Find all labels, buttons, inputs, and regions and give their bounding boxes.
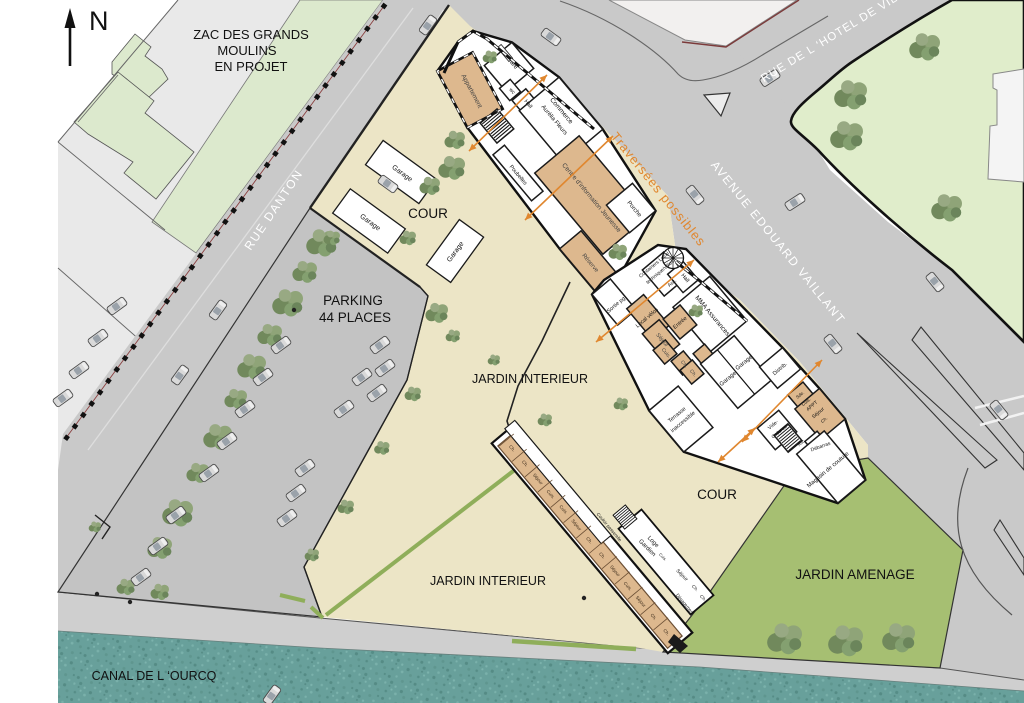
svg-text:JARDIN INTERIEUR: JARDIN INTERIEUR [430, 574, 546, 588]
svg-text:JARDIN INTERIEUR: JARDIN INTERIEUR [472, 372, 588, 386]
svg-text:COUR: COUR [408, 206, 448, 221]
svg-text:44 PLACES: 44 PLACES [319, 310, 391, 325]
svg-text:JARDIN AMENAGE: JARDIN AMENAGE [795, 567, 914, 582]
svg-text:ZAC DES GRANDS: ZAC DES GRANDS [193, 27, 309, 42]
svg-text:PARKING: PARKING [323, 293, 383, 308]
svg-text:MOULINS: MOULINS [217, 43, 277, 58]
svg-text:N: N [89, 6, 109, 36]
svg-text:CANAL DE L ‘OURCQ: CANAL DE L ‘OURCQ [92, 669, 217, 683]
svg-text:COUR: COUR [697, 487, 737, 502]
svg-text:EN PROJET: EN PROJET [215, 59, 288, 74]
